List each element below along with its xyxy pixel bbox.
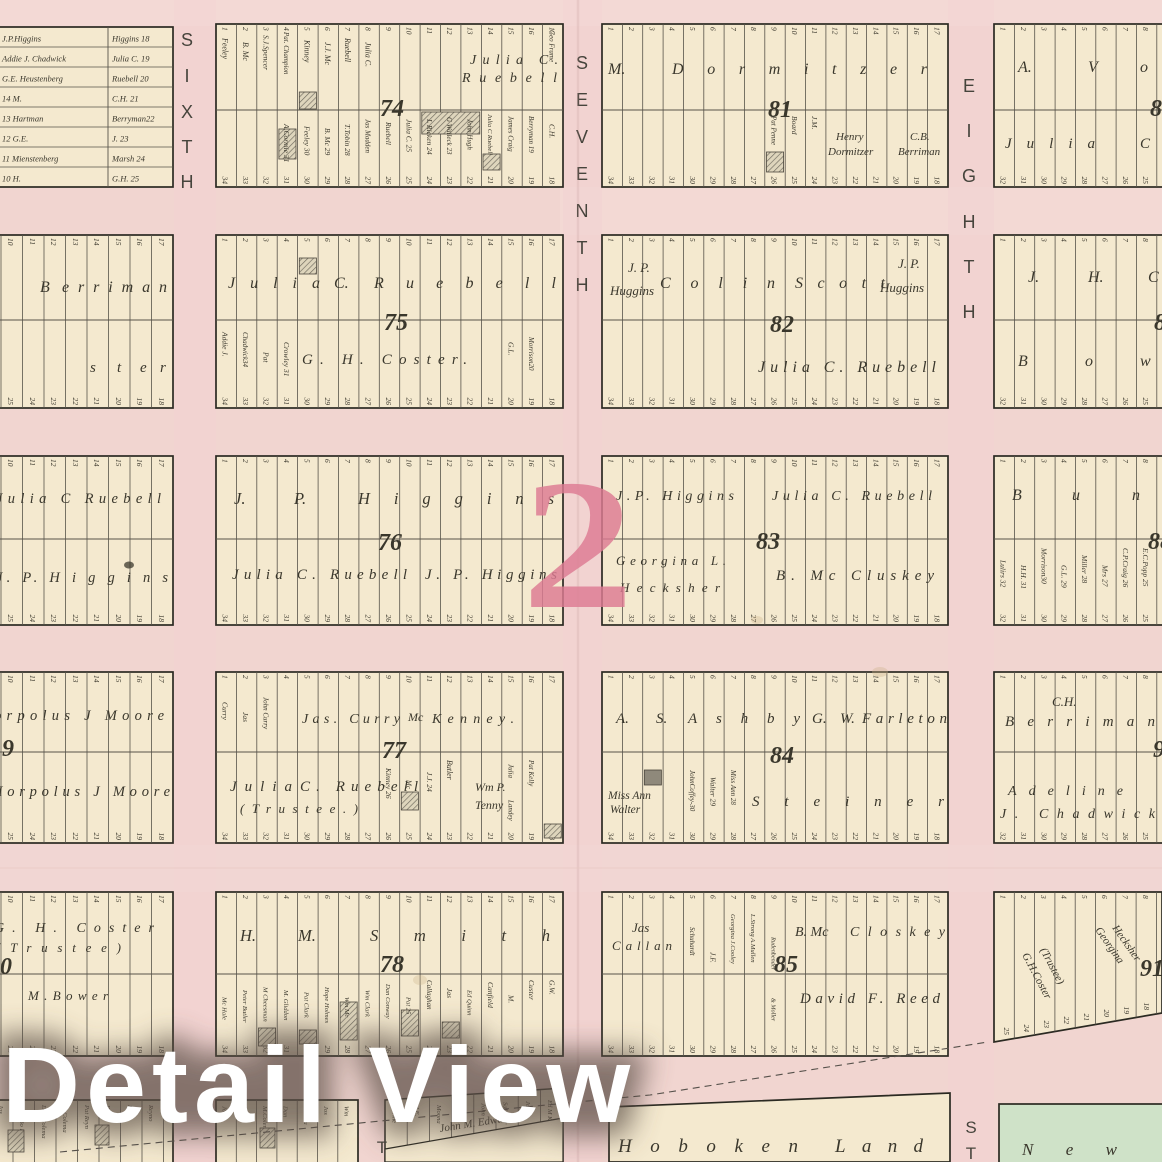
svg-text:22: 22 [851,398,860,406]
svg-text:Chadwick34: Chadwick34 [241,332,249,367]
svg-text:Jas: Jas [241,712,250,722]
svg-text:20: 20 [507,833,516,841]
svg-text:21: 21 [871,833,880,841]
svg-text:25: 25 [6,398,15,406]
svg-text:25: 25 [1141,615,1150,623]
svg-text:Addie J.: Addie J. [221,331,230,357]
svg-text:8: 8 [364,675,373,679]
svg-text:33: 33 [627,832,636,841]
svg-text:7: 7 [1121,27,1130,31]
svg-text:Wm Clark: Wm Clark [364,990,371,1018]
svg-text:Berryman 19: Berryman 19 [527,116,535,153]
svg-text:7: 7 [729,675,738,679]
svg-text:30: 30 [688,176,697,185]
svg-text:77: 77 [382,738,407,764]
svg-text:8: 8 [1141,459,1150,463]
svg-text:Miller 28: Miller 28 [1080,554,1089,583]
svg-text:12: 12 [445,459,454,467]
svg-text:2: 2 [627,675,636,679]
svg-text:G.L. 29: G.L. 29 [1060,565,1069,588]
svg-text:21: 21 [871,615,880,623]
svg-text:81: 81 [768,97,792,123]
svg-text:13: 13 [466,895,475,903]
svg-text:6: 6 [323,459,332,463]
svg-text:19: 19 [912,1046,921,1054]
svg-text:12: 12 [445,238,454,246]
svg-text:15: 15 [114,238,123,246]
svg-text:Mc: Mc [407,710,424,724]
svg-text:24: 24 [425,177,434,185]
svg-text:n: n [1132,487,1140,504]
svg-text:H.H. 31: H.H. 31 [1019,564,1028,589]
svg-text:3: 3 [647,458,656,463]
svg-text:C.P.Craig 26: C.P.Craig 26 [1121,548,1130,587]
svg-text:15: 15 [114,459,123,467]
svg-text:16: 16 [135,675,144,683]
svg-text:8: 8 [364,238,373,242]
svg-text:B. Mc: B. Mc [241,42,250,61]
svg-text:14: 14 [486,895,495,903]
svg-text:9: 9 [384,27,393,31]
svg-text:24: 24 [810,398,819,406]
svg-text:Feeley: Feeley [221,37,230,60]
svg-text:15: 15 [507,675,516,683]
svg-text:3: 3 [262,458,271,463]
svg-text:33: 33 [241,614,250,623]
svg-text:14: 14 [486,675,495,683]
svg-text:11: 11 [28,895,37,902]
svg-text:21: 21 [486,833,495,841]
svg-text:22: 22 [851,1046,860,1054]
svg-text:Pat Clark: Pat Clark [302,991,309,1019]
svg-text:27: 27 [364,177,373,185]
svg-text:83: 83 [756,529,780,555]
svg-text:7: 7 [729,27,738,31]
svg-text:30: 30 [302,176,311,185]
svg-text:10: 10 [6,238,15,246]
svg-text:18: 18 [157,615,166,623]
svg-text:31: 31 [668,397,677,406]
svg-text:JohnCoffey-30: JohnCoffey-30 [688,770,696,812]
svg-text:8: 8 [749,675,758,679]
svg-text:S.: S. [656,711,667,727]
svg-text:15: 15 [114,675,123,683]
svg-text:6: 6 [708,459,717,463]
svg-text:31: 31 [668,832,677,841]
svg-text:13: 13 [71,675,80,683]
svg-text:15: 15 [892,895,901,903]
svg-text:26: 26 [770,177,779,185]
svg-text:19: 19 [135,615,144,623]
svg-text:25: 25 [790,398,799,406]
svg-text:Butler: Butler [445,760,454,781]
svg-text:5: 5 [688,895,697,899]
svg-text:16: 16 [527,238,536,246]
svg-text:3: 3 [647,894,656,899]
svg-text:1: 1 [221,238,230,242]
svg-text:31: 31 [1019,832,1028,841]
svg-text:Mrs 27: Mrs 27 [1100,564,1109,587]
svg-text:25: 25 [404,833,413,841]
svg-text:9: 9 [384,238,393,242]
svg-text:Hope Holmes: Hope Holmes [323,986,330,1024]
svg-text:S: S [965,1118,976,1137]
svg-text:32: 32 [647,176,656,185]
svg-text:9: 9 [770,238,779,242]
svg-text:82: 82 [770,312,794,338]
svg-text:B: B [1012,487,1022,504]
svg-text:C.H. 21: C.H. 21 [112,93,139,103]
svg-text:20: 20 [114,833,123,841]
svg-text:20: 20 [507,398,516,406]
svg-text:22: 22 [851,177,860,185]
svg-text:22: 22 [466,177,475,185]
svg-text:Kinney: Kinney [302,39,311,63]
svg-text:13: 13 [851,895,860,903]
svg-text:5: 5 [688,27,697,31]
svg-text:13: 13 [851,238,860,246]
svg-text:2: 2 [1019,238,1028,242]
svg-text:19: 19 [527,177,536,185]
svg-text:7: 7 [1121,459,1130,463]
svg-text:4: 4 [282,895,291,899]
svg-text:16: 16 [135,238,144,246]
svg-text:32: 32 [999,397,1008,406]
svg-text:14: 14 [871,895,880,903]
svg-text:32: 32 [647,1045,656,1054]
svg-text:11: 11 [810,459,819,466]
svg-text:11: 11 [425,238,434,245]
svg-text:12: 12 [831,895,840,903]
svg-text:22: 22 [1062,1017,1071,1025]
svg-text:8: 8 [1141,675,1150,679]
svg-text:27: 27 [364,615,373,623]
svg-text:5: 5 [302,238,311,242]
svg-text:25: 25 [6,615,15,623]
svg-text:10: 10 [790,675,799,683]
svg-text:C.: C. [334,275,349,292]
svg-text:24: 24 [425,833,434,841]
svg-text:22: 22 [466,398,475,406]
svg-text:29: 29 [708,177,717,185]
svg-text:31: 31 [282,832,291,841]
svg-text:12: 12 [445,675,454,683]
svg-text:u: u [1072,487,1080,504]
svg-text:27: 27 [364,833,373,841]
svg-text:T: T [964,257,975,277]
svg-text:14: 14 [92,895,101,903]
svg-text:8: 8 [1141,895,1150,899]
svg-text:4: 4 [668,675,677,679]
svg-text:25: 25 [790,833,799,841]
svg-text:15: 15 [892,459,901,467]
svg-text:19: 19 [912,833,921,841]
svg-text:23: 23 [831,833,840,841]
svg-text:13: 13 [466,675,475,683]
svg-text:32: 32 [262,832,271,841]
svg-text:C.B.: C.B. [910,131,930,143]
svg-text:A.: A. [1017,59,1032,76]
svg-text:16: 16 [527,895,536,903]
svg-text:20: 20 [507,177,516,185]
svg-text:24: 24 [1022,1025,1031,1033]
svg-text:2: 2 [627,895,636,899]
svg-text:2: 2 [1019,675,1028,679]
svg-text:Jas: Jas [445,988,454,998]
svg-text:12: 12 [49,459,58,467]
svg-text:19: 19 [135,833,144,841]
svg-text:M.: M. [607,61,625,78]
svg-text:32: 32 [647,614,656,623]
svg-text:John Hugh: John Hugh [466,119,474,150]
svg-text:12: 12 [831,675,840,683]
svg-text:Canfield: Canfield [486,982,495,1008]
svg-text:34: 34 [221,614,230,623]
svg-text:24: 24 [28,833,37,841]
svg-text:31: 31 [668,1045,677,1054]
svg-text:7: 7 [729,238,738,242]
svg-text:9: 9 [2,736,14,762]
svg-text:10: 10 [404,238,413,246]
svg-text:17: 17 [932,459,941,467]
svg-text:3: 3 [262,894,271,899]
svg-text:17: 17 [547,895,556,903]
svg-text:31: 31 [1019,176,1028,185]
svg-text:24: 24 [810,615,819,623]
svg-text:12: 12 [831,238,840,246]
svg-text:4: 4 [1060,459,1069,463]
svg-text:17: 17 [157,895,166,903]
svg-text:9: 9 [384,459,393,463]
svg-text:29: 29 [1060,615,1069,623]
svg-text:6: 6 [323,238,332,242]
svg-text:21: 21 [486,177,495,185]
svg-text:10: 10 [790,238,799,246]
svg-text:15: 15 [507,459,516,467]
svg-text:14: 14 [486,27,495,35]
svg-text:Lulirs 32: Lulirs 32 [999,559,1008,588]
svg-text:75: 75 [384,310,408,336]
svg-text:24: 24 [28,615,37,623]
svg-text:M.: M. [507,994,516,1003]
svg-text:T.Tobin 28: T.Tobin 28 [343,124,352,156]
svg-text:Pat Kelly: Pat Kelly [527,759,535,787]
svg-text:26: 26 [384,833,393,841]
svg-text:6: 6 [323,895,332,899]
svg-text:3: 3 [647,26,656,31]
svg-text:L Ricken 24: L Ricken 24 [425,118,434,155]
svg-text:7: 7 [1121,895,1130,899]
svg-text:32: 32 [647,397,656,406]
svg-text:J.M.: J.M. [810,116,819,129]
svg-text:21: 21 [486,615,495,623]
svg-text:25: 25 [1141,398,1150,406]
svg-text:4: 4 [1060,238,1069,242]
svg-text:4: 4 [668,238,677,242]
svg-text:Georgina J.Cooley: Georgina J.Cooley [729,914,736,964]
svg-text:23: 23 [445,398,454,406]
svg-text:7: 7 [343,895,352,899]
svg-text:24: 24 [810,177,819,185]
svg-text:11: 11 [810,895,819,902]
svg-text:32: 32 [999,614,1008,623]
svg-text:21: 21 [871,398,880,406]
svg-text:24: 24 [425,615,434,623]
svg-text:88: 88 [1148,529,1162,555]
svg-text:5: 5 [688,459,697,463]
svg-text:J.: J. [1028,269,1039,286]
svg-text:7: 7 [729,895,738,899]
svg-text:G.E. Heustenberg: G.E. Heustenberg [2,73,63,83]
svg-text:2: 2 [241,675,250,679]
svg-text:18: 18 [932,398,941,406]
svg-text:J.J. Mc: J.J. Mc [323,42,332,65]
svg-text:11: 11 [810,238,819,245]
svg-text:11: 11 [28,459,37,466]
svg-text:26: 26 [384,177,393,185]
svg-text:14: 14 [92,238,101,246]
svg-text:23: 23 [1042,1021,1051,1029]
svg-text:John Curry: John Curry [262,697,270,730]
svg-text:27: 27 [1100,177,1109,185]
svg-text:30: 30 [302,832,311,841]
svg-text:13: 13 [466,238,475,246]
svg-text:e: e [140,360,147,376]
svg-text:6: 6 [1100,675,1109,679]
svg-text:1: 1 [607,675,616,679]
svg-text:Curry: Curry [221,702,230,721]
svg-text:Callaghan: Callaghan [425,980,433,1010]
svg-text:7: 7 [343,459,352,463]
svg-text:30: 30 [1039,397,1048,406]
svg-text:5: 5 [302,895,311,899]
svg-text:14: 14 [92,459,101,467]
svg-text:G.W.: G.W. [547,980,556,995]
svg-text:17: 17 [932,675,941,683]
svg-text:2: 2 [627,238,636,242]
svg-text:& Moller: & Moller [770,998,777,1022]
svg-text:6: 6 [323,675,332,679]
svg-text:16: 16 [527,27,536,35]
svg-text:11: 11 [28,675,37,682]
svg-text:34: 34 [221,397,230,406]
svg-text:13: 13 [466,459,475,467]
svg-text:9: 9 [770,895,779,899]
svg-text:Jas Madden: Jas Madden [364,119,372,154]
svg-text:19: 19 [527,398,536,406]
svg-text:14: 14 [871,459,880,467]
svg-text:18: 18 [932,615,941,623]
svg-text:18: 18 [157,398,166,406]
svg-text:23: 23 [445,177,454,185]
svg-text:Ruebell 20: Ruebell 20 [111,73,149,83]
svg-text:10: 10 [6,895,15,903]
svg-text:17: 17 [157,238,166,246]
svg-text:30: 30 [1039,614,1048,623]
svg-text:33: 33 [241,397,250,406]
svg-text:4: 4 [282,27,291,31]
svg-text:17: 17 [932,238,941,246]
svg-text:1: 1 [221,459,230,463]
svg-text:31: 31 [282,176,291,185]
svg-text:20: 20 [507,615,516,623]
svg-text:13: 13 [71,895,80,903]
svg-text:21: 21 [871,177,880,185]
svg-text:2: 2 [241,895,250,899]
svg-text:T: T [182,137,193,157]
svg-text:23: 23 [445,833,454,841]
svg-text:19: 19 [912,177,921,185]
svg-text:15: 15 [507,895,516,903]
svg-text:Ruebell: Ruebell [384,121,393,145]
svg-text:34: 34 [607,176,616,185]
svg-text:8: 8 [1141,238,1150,242]
svg-text:31: 31 [1019,397,1028,406]
svg-text:Landey: Landey [507,799,515,822]
svg-text:34: 34 [607,397,616,406]
svg-text:J.J. 24: J.J. 24 [425,772,434,792]
svg-text:29: 29 [708,615,717,623]
svg-text:Morrison30: Morrison30 [1039,547,1048,584]
svg-text:11: 11 [425,459,434,466]
svg-text:27: 27 [1100,615,1109,623]
svg-text:2: 2 [1019,459,1028,463]
svg-text:4: 4 [668,895,677,899]
svg-text:Detail View: Detail View [2,1024,636,1145]
svg-text:A.Cormie 31: A.Cormie 31 [282,123,291,162]
svg-text:P.: P. [293,489,306,508]
svg-text:G.L.: G.L. [507,342,516,355]
svg-text:6: 6 [1100,459,1109,463]
svg-text:2: 2 [522,441,635,647]
svg-text:13: 13 [851,675,860,683]
svg-text:4: 4 [1060,895,1069,899]
svg-text:22: 22 [71,615,80,623]
svg-text:J. 23: J. 23 [112,133,129,143]
svg-text:12 G.E.: 12 G.E. [2,133,28,143]
svg-text:G.H. 25: G.H. 25 [112,173,139,183]
svg-text:1: 1 [999,675,1008,679]
svg-text:Miss Ann: Miss Ann [607,790,651,802]
svg-text:32: 32 [262,397,271,406]
svg-text:6: 6 [1100,895,1109,899]
svg-text:17: 17 [932,27,941,35]
svg-text:5: 5 [302,459,311,463]
svg-text:10: 10 [790,459,799,467]
svg-text:10: 10 [404,459,413,467]
svg-text:Peter Butler: Peter Butler [241,989,248,1023]
svg-text:12: 12 [445,27,454,35]
svg-text:M.: M. [297,926,316,945]
svg-text:7: 7 [343,238,352,242]
svg-text:84: 84 [770,743,794,769]
svg-text:M Cheesman: M Cheesman [262,986,269,1022]
svg-text:15: 15 [892,238,901,246]
svg-text:J.: J. [234,489,245,508]
svg-text:G Walleck 23: G Walleck 23 [445,117,453,155]
svg-text:Jas. Curry: Jas. Curry [302,712,401,727]
svg-text:34: 34 [221,832,230,841]
svg-text:25: 25 [404,398,413,406]
svg-text:I: I [966,121,971,141]
svg-text:Ruebell: Ruebell [343,37,352,63]
svg-text:27: 27 [749,1046,758,1054]
svg-text:23: 23 [831,398,840,406]
svg-text:12: 12 [445,895,454,903]
svg-text:1: 1 [999,459,1008,463]
svg-text:5: 5 [1080,238,1089,242]
svg-text:28: 28 [343,398,352,406]
